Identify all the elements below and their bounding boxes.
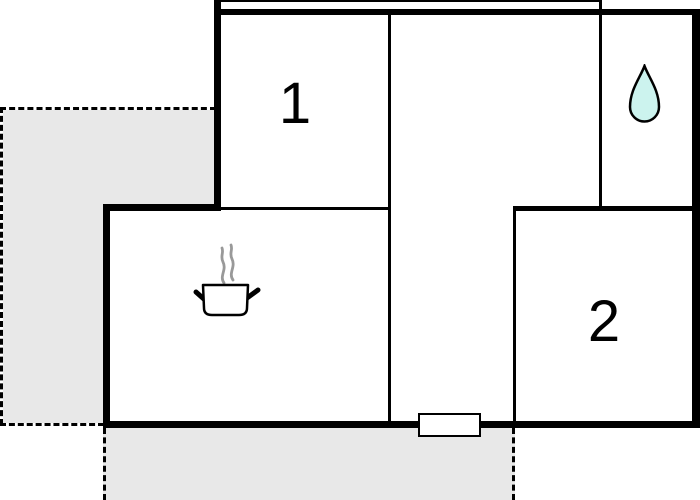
wall-room2-top xyxy=(513,206,700,211)
steaming-pot-icon xyxy=(188,242,266,322)
terrace-bottom xyxy=(103,428,515,500)
door-bottom xyxy=(418,413,481,437)
terrace-left-dashed-left-edge xyxy=(0,107,3,425)
pot-body xyxy=(203,285,248,315)
wall-exterior-top xyxy=(214,9,700,15)
wall-exterior-left-lower xyxy=(103,204,110,428)
terrace-left-dashed-top-edge xyxy=(0,107,216,110)
wall-room1-bottom xyxy=(221,207,388,210)
steam-line-left xyxy=(222,248,224,283)
floor-plan: 1 2 xyxy=(0,0,700,500)
wall-hallway-left xyxy=(388,15,391,421)
steam-line-right xyxy=(231,245,233,280)
terrace-left-fill-lower xyxy=(3,207,103,423)
wall-kitchen-top xyxy=(103,204,221,211)
wall-exterior-bottom xyxy=(103,421,700,428)
wall-top-edge-line xyxy=(217,0,599,2)
terrace-left-dashed-bottom-edge xyxy=(0,423,104,426)
terrace-left-fill-upper xyxy=(3,110,214,207)
wall-exterior-left-upper xyxy=(214,0,221,211)
room-2-label: 2 xyxy=(572,290,636,354)
room-1-label: 1 xyxy=(263,72,327,136)
wall-room2-left xyxy=(513,206,516,421)
wall-exterior-right xyxy=(692,9,700,428)
wall-bathroom-left xyxy=(599,0,602,211)
water-drop-icon xyxy=(626,64,663,128)
